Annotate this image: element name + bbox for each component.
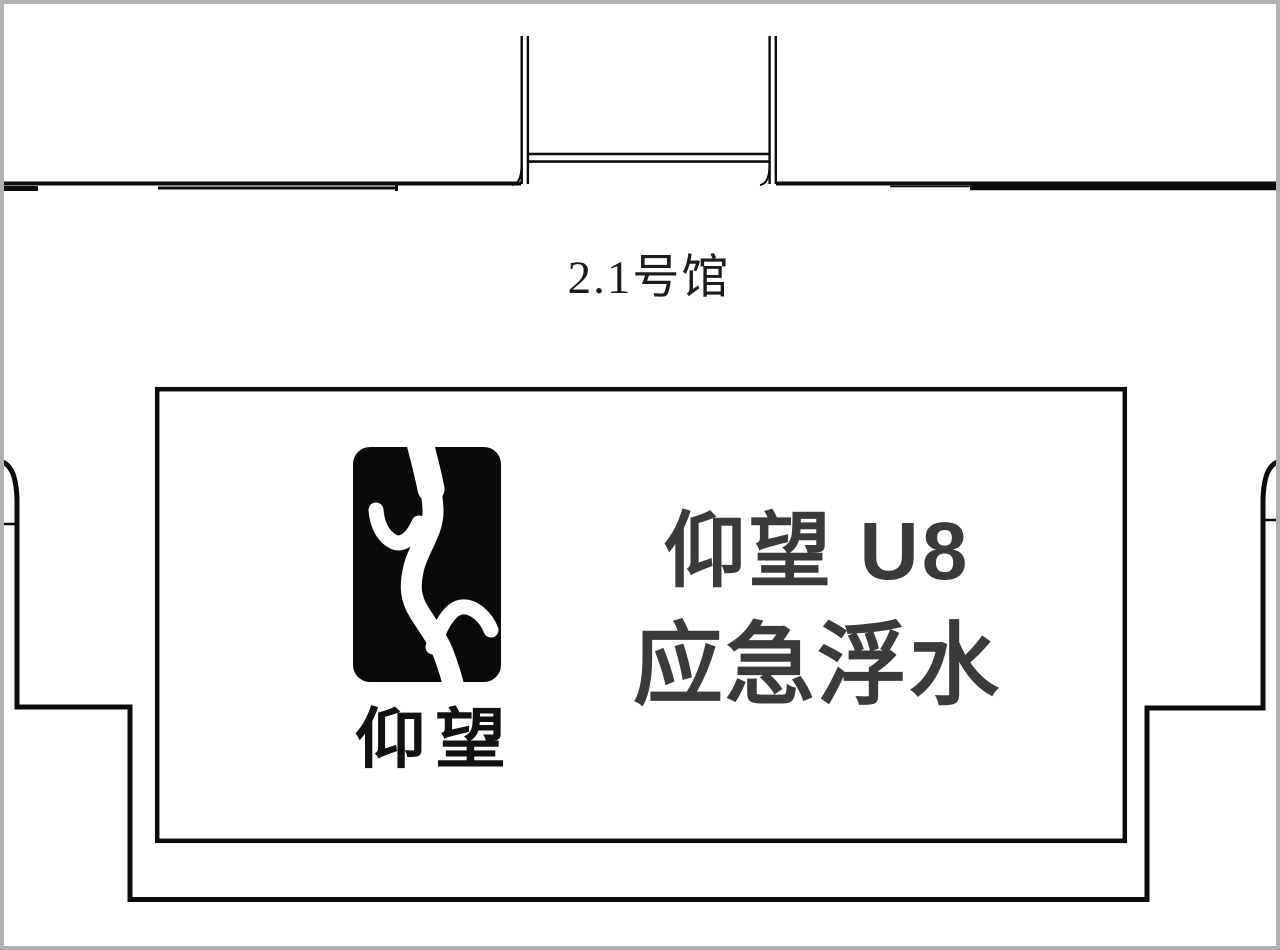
- right-wall: [1147, 497, 1263, 902]
- yangwang-logo-mark: [353, 447, 501, 682]
- hall-label: 2.1号馆: [568, 238, 731, 307]
- left-wall-arc: [0, 461, 17, 499]
- yangwang-wordmark: 仰望: [355, 707, 677, 772]
- left-wall: [17, 497, 130, 902]
- booth-title: 仰望 U8 应急浮水: [507, 509, 1127, 711]
- door-left-jamb: [522, 36, 528, 184]
- exhibition-floorplan: 2.1号馆 仰望 仰望 U8 应急浮水: [0, 0, 1280, 950]
- door-lintel: [529, 154, 769, 162]
- yangwang-logo-icon: [353, 447, 501, 682]
- right-wall-arc: [1263, 461, 1280, 499]
- booth-yangwang-u8[interactable]: 仰望 仰望 U8 应急浮水: [155, 387, 1127, 843]
- door-right-jamb: [770, 36, 776, 184]
- booth-title-line1: 仰望 U8: [507, 509, 1127, 595]
- booth-title-line2: 应急浮水: [507, 621, 1127, 711]
- door-right-jamb-fillet: [760, 165, 770, 185]
